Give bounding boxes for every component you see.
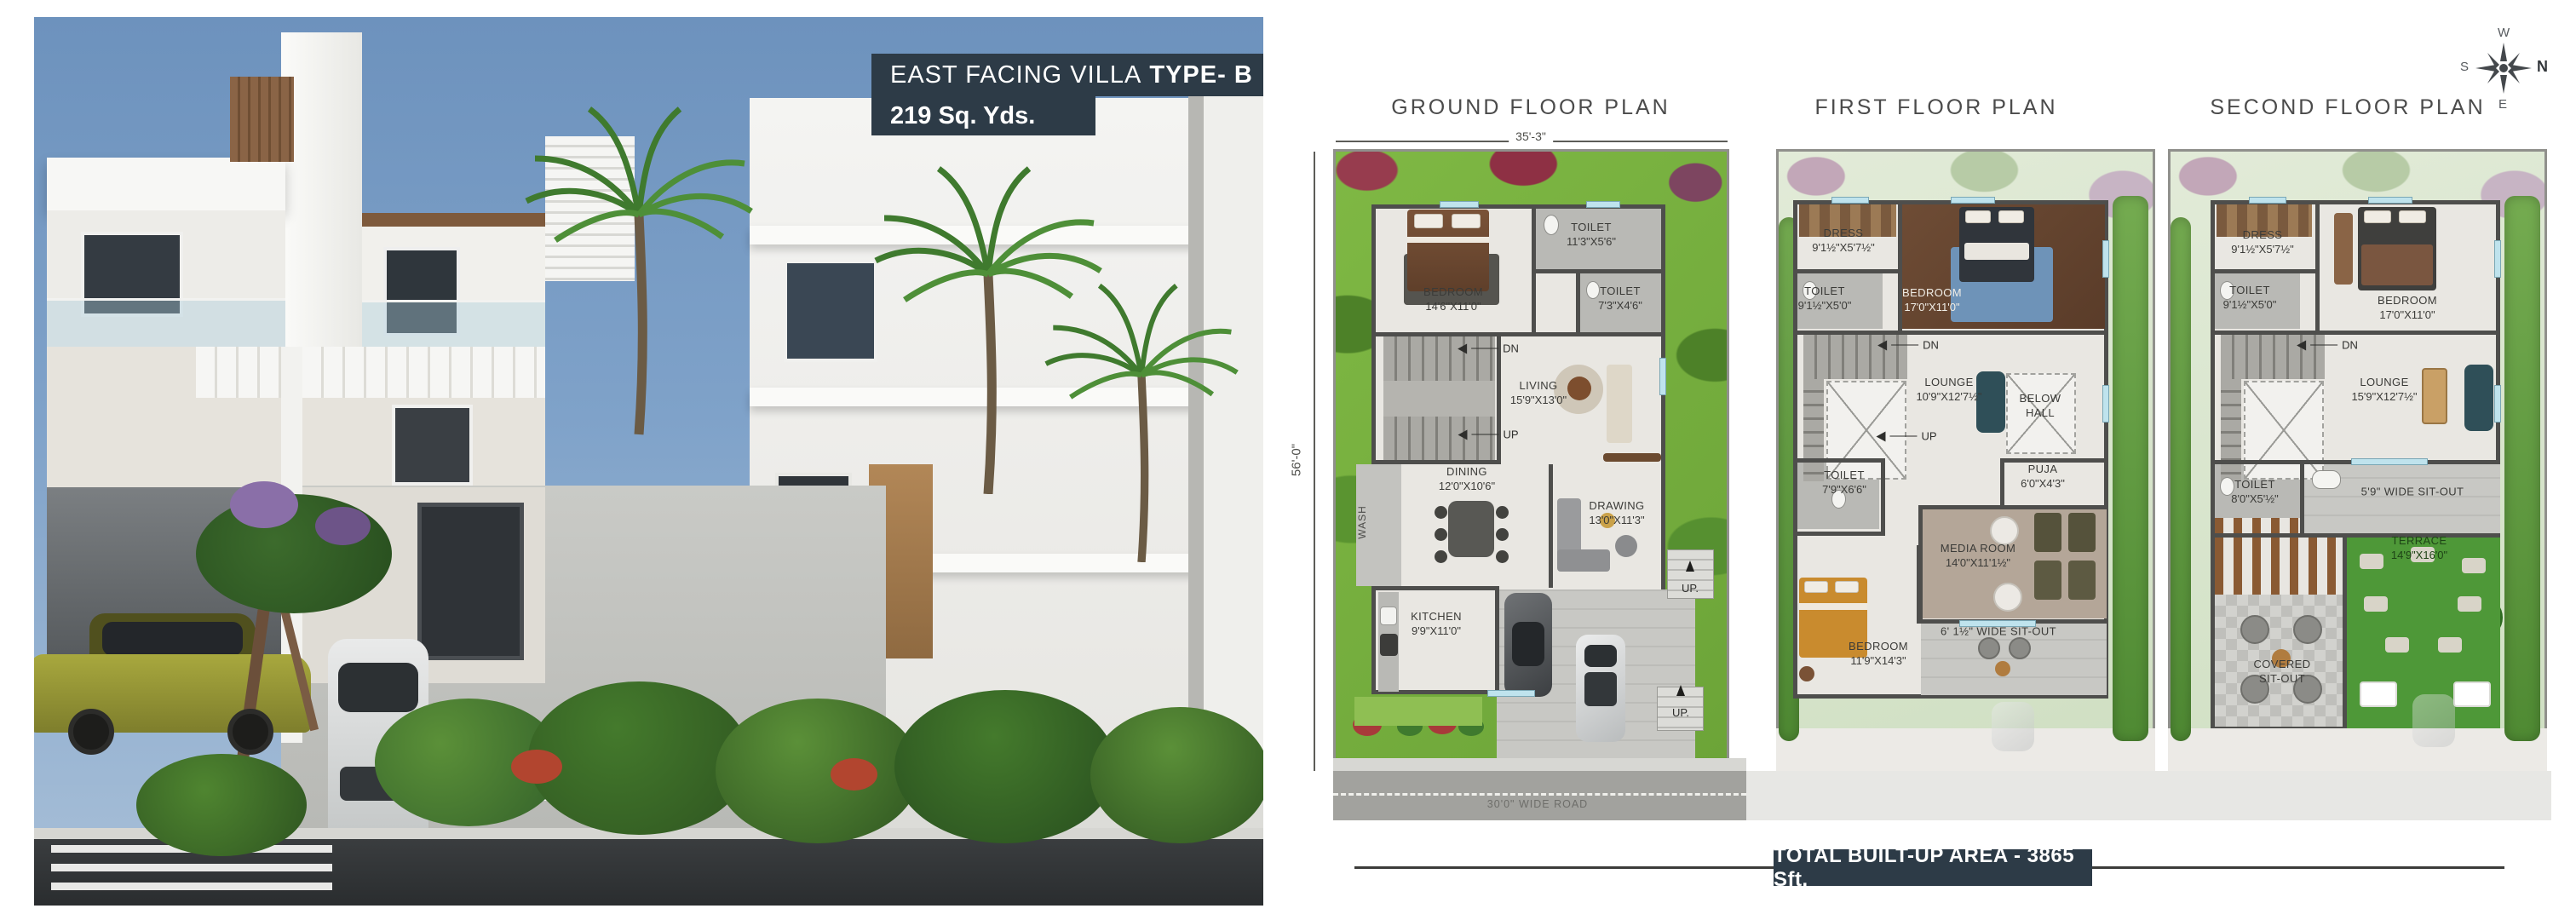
- room-label-bedroom: BEDROOM14'6"X11'0": [1423, 285, 1483, 314]
- bush: [716, 699, 920, 843]
- window: [392, 405, 473, 486]
- interior-wall: [1793, 458, 1885, 463]
- hedge-strip: [2504, 196, 2540, 741]
- wc-fixture: [1544, 215, 1559, 235]
- interior-wall: [1532, 269, 1665, 273]
- bed-pillow: [1835, 581, 1859, 593]
- villa-render-photo: [34, 17, 1263, 906]
- window-glass: [1951, 197, 1995, 204]
- entry-up-label: UP.: [1672, 685, 1689, 719]
- interior-wall: [2343, 533, 2347, 728]
- front-walk: [1776, 728, 2155, 771]
- olive-car: [34, 613, 311, 775]
- car-roof-glass: [1512, 622, 1544, 666]
- arrow-line: [2310, 344, 2337, 346]
- stairs-arrow-icon: [2297, 340, 2306, 350]
- total-area-banner: TOTAL BUILT-UP AREA - 3865 Sft.: [1774, 849, 2092, 886]
- sink: [1380, 607, 1397, 625]
- room-label-sitout: 6' 1½" WIDE SIT-OUT: [1941, 625, 2056, 640]
- window-glass: [2249, 197, 2286, 204]
- window-glass: [2102, 240, 2109, 278]
- bed-graphic: [2358, 207, 2436, 290]
- interior-wall: [1917, 545, 1921, 624]
- height-dimension-label: 56'-0": [1290, 437, 1304, 483]
- stair-flight: [1803, 379, 1824, 481]
- purple-flowers: [315, 507, 371, 545]
- sitout-chair: [2240, 615, 2269, 644]
- room-label-bedroom: BEDROOM17'0"X11'0": [2378, 294, 2437, 323]
- window-glass: [2102, 385, 2109, 423]
- interior-wall: [2300, 460, 2304, 537]
- car-below-faint: [1992, 702, 2034, 751]
- interior-wall: [1793, 331, 2108, 335]
- bedside-rug: [2334, 213, 2353, 285]
- road-center-line: [1333, 793, 1746, 796]
- first-floor-plan-title: FIRST FLOOR PLAN: [1783, 95, 2090, 120]
- stair-void: [2244, 381, 2324, 480]
- road-label: 30'0" WIDE ROAD: [1487, 798, 1588, 810]
- planter-strip: [1354, 697, 1482, 726]
- entry-up-label: UP.: [1682, 561, 1699, 595]
- sofa: [2464, 365, 2493, 431]
- room-label-media-room: MEDIA ROOM14'0"X11'1½": [1941, 542, 2016, 571]
- stairs-dn-label: DN: [2297, 339, 2358, 352]
- terrace-planter: [2453, 681, 2491, 707]
- interior-wall: [2211, 331, 2500, 335]
- window-glass: [2494, 385, 2501, 423]
- interior-wall: [1549, 464, 1553, 588]
- interior-wall: [2000, 458, 2004, 508]
- interior-wall: [2315, 200, 2320, 332]
- hero-title-type: TYPE- B: [1149, 61, 1252, 89]
- dining-chair: [1435, 506, 1447, 519]
- bush: [136, 754, 307, 856]
- window-glass: [2351, 458, 2428, 465]
- stair-flight: [2221, 379, 2241, 481]
- window: [784, 260, 877, 362]
- front-walk: [2168, 728, 2547, 771]
- car-windows: [102, 622, 243, 656]
- second-floor-plan-title: SECOND FLOOR PLAN: [2194, 95, 2501, 120]
- parked-car-silver: [1576, 635, 1625, 742]
- room-label-toilet: TOILET7'9"X6'6": [1822, 469, 1866, 497]
- arrow-line: [1471, 348, 1498, 349]
- bush: [894, 690, 1116, 843]
- compass-west-label: W: [2498, 26, 2510, 40]
- room-label-dress: DRESS9'1½"X5'7½": [1812, 227, 1874, 256]
- dining-chair: [1435, 550, 1447, 563]
- stairs-arrow-icon: [1458, 343, 1467, 354]
- stove: [1380, 634, 1398, 656]
- room-label-puja: PUJA6'0"X4'3": [2021, 463, 2065, 492]
- room-label-lounge: LOUNGE15'9"X12'7½": [2351, 376, 2417, 405]
- compass-north-label: N: [2537, 58, 2548, 76]
- road-continuation: [1746, 771, 2551, 820]
- window-glass: [2368, 197, 2412, 204]
- ground-floor-plan-title: GROUND FLOOR PLAN: [1377, 95, 1684, 120]
- car-windshield: [338, 663, 418, 712]
- room-label-toilet: TOILET9'1½"X5'0": [2223, 284, 2277, 313]
- room-label-bedroom: BEDROOM17'0"X11'0": [1902, 286, 1962, 315]
- interior-wall: [1793, 269, 1900, 273]
- car-roof-glass: [1584, 672, 1617, 706]
- window-glass: [1659, 358, 1666, 395]
- terrace-paver: [2458, 596, 2481, 612]
- dining-chair: [1496, 528, 1509, 541]
- bed-pillow: [1414, 214, 1443, 228]
- parked-car-dark: [1504, 593, 1552, 697]
- stairs-arrow-icon: [1458, 429, 1467, 440]
- room-label-dress: DRESS9'1½"X5'7½": [2231, 228, 2293, 257]
- room-label-living: LIVING15'9"X13'0": [1510, 379, 1567, 408]
- stairs-arrow-icon: [1876, 431, 1885, 441]
- sitout-chair: [2009, 637, 2031, 659]
- interior-wall: [2211, 533, 2304, 538]
- interior-wall: [1793, 532, 1885, 536]
- palm-tree: [511, 94, 767, 460]
- window-glass: [1487, 690, 1535, 697]
- bed-blanket: [2361, 244, 2433, 285]
- sitout-table: [1995, 661, 2010, 676]
- room-label-covered-sitout: COVEREDSIT-OUT: [2253, 658, 2310, 687]
- bed-sheet-band: [1407, 237, 1489, 243]
- stairs-up-label: UP: [1876, 430, 1936, 443]
- room-label-sitout: 5'9" WIDE SIT-OUT: [2361, 486, 2464, 500]
- white-balcony-rail: [196, 347, 545, 398]
- interior-wall: [1371, 332, 1542, 336]
- palm-tree: [1039, 273, 1244, 562]
- arrow-line: [1891, 344, 1918, 346]
- bed-sheet-band: [1964, 243, 2029, 260]
- round-table: [1990, 516, 2019, 545]
- stairs-up-label: UP: [1458, 428, 1518, 441]
- up-arrow-icon: [1676, 685, 1685, 696]
- hero-subtitle-banner: 219 Sq. Yds.: [871, 96, 1095, 135]
- glass-entry-door: [417, 503, 524, 660]
- hedge-strip: [2171, 217, 2191, 741]
- terrace-planter: [2360, 681, 2397, 707]
- bathtub-fixture: [2312, 470, 2341, 489]
- terrace-paver: [2438, 637, 2462, 653]
- room-label-bedroom: BEDROOM11'9"X14'3": [1849, 640, 1908, 669]
- car-wheel: [227, 709, 273, 755]
- car-windshield: [1584, 645, 1617, 667]
- recliner-seat: [2068, 513, 2096, 552]
- bed-pillow: [2399, 210, 2426, 223]
- bed-pillow: [1965, 210, 1991, 223]
- bed-pillow: [1804, 581, 1828, 593]
- sofa: [1557, 549, 1610, 572]
- stairs-dn-label: DN: [1458, 342, 1519, 355]
- terrace-paver: [2462, 558, 2486, 573]
- room-label-kitchen: KITCHEN9'9"X11'0": [1411, 610, 1462, 639]
- terrace-paver: [2364, 596, 2388, 612]
- interior-wall: [2211, 460, 2304, 464]
- roof-slab: [47, 158, 285, 210]
- interior-wall: [1495, 586, 1499, 694]
- room-label-terrace: TERRACE14'9"X16'0": [2391, 534, 2447, 563]
- bed-pillow: [1998, 210, 2024, 223]
- room-label-drawing: DRAWING13'0"X11'3": [1589, 499, 1644, 528]
- bed-graphic: [1407, 210, 1489, 291]
- hero-subtitle: 219 Sq. Yds.: [890, 102, 1035, 130]
- room-label-dining: DINING12'0"X10'6": [1439, 465, 1495, 494]
- window-glass: [1831, 197, 1869, 204]
- armchair: [1567, 377, 1591, 400]
- sitout-chair: [2293, 615, 2322, 644]
- terrace-paver: [2360, 554, 2383, 569]
- round-table: [1993, 583, 2022, 612]
- dining-chair: [1496, 506, 1509, 519]
- room-label-lounge: LOUNGE10'9"X12'7½": [1916, 376, 1981, 405]
- hero-title: EAST FACING VILLA: [890, 61, 1141, 89]
- plan-road: [1333, 771, 1746, 820]
- bed-graphic: [1959, 207, 2034, 282]
- interior-wall: [1881, 458, 1885, 535]
- red-flower-bush: [831, 758, 877, 791]
- arrow-line: [1889, 435, 1917, 437]
- car-wheel: [68, 709, 114, 755]
- interior-wall: [1918, 505, 2108, 509]
- crosswalk-stripes: [51, 845, 332, 900]
- interior-wall: [2211, 269, 2317, 273]
- upper-floor-wall: [47, 210, 285, 347]
- room-label-wash: WASH: [1356, 505, 1368, 539]
- total-area-text: TOTAL BUILT-UP AREA - 3865 Sft.: [1774, 844, 2092, 892]
- glass-balcony-rail: [47, 298, 285, 347]
- purple-flowers: [230, 481, 298, 528]
- room-label-toilet: TOILET9'1½"X5'0": [1798, 285, 1852, 313]
- window-glass: [1586, 201, 1620, 208]
- arrow-line: [1471, 434, 1498, 435]
- interior-wall: [1371, 460, 1501, 464]
- window-glass: [2494, 240, 2501, 278]
- recliner-seat: [2034, 513, 2061, 552]
- side-table: [1799, 666, 1814, 681]
- wood-accent-panel: [230, 77, 294, 162]
- dining-chair: [1435, 528, 1447, 541]
- stairs-arrow-icon: [1877, 340, 1887, 350]
- hedge-strip: [2113, 196, 2148, 741]
- room-label-toilet: TOILET11'3"X5'6": [1567, 221, 1616, 250]
- recliner-seat: [2034, 561, 2061, 600]
- sidewalk: [1333, 758, 1746, 771]
- bed-pillow: [1452, 214, 1481, 228]
- interior-wall: [1542, 332, 1665, 336]
- terrace-paver: [2385, 637, 2409, 653]
- up-arrow-icon: [1686, 561, 1694, 572]
- width-dimension-label: 35'-3": [1509, 129, 1553, 143]
- interior-wall: [1576, 269, 1580, 334]
- room-label-below-hall: BELOWHALL: [2020, 392, 2061, 421]
- hero-title-banner: EAST FACING VILLA TYPE- B: [871, 54, 1263, 96]
- room-label-toilet: TOILET7'3"X4'6": [1598, 285, 1642, 313]
- bush: [1090, 707, 1263, 843]
- recliner-seat: [2068, 561, 2096, 600]
- dining-table: [1448, 501, 1494, 557]
- sofa: [1607, 365, 1632, 443]
- brochure-page: { "hero": { "title_regular": "EAST FACIN…: [0, 0, 2576, 920]
- armchair: [1615, 535, 1637, 557]
- tv-console: [1603, 453, 1661, 462]
- stairs-dn-label: DN: [1877, 339, 1939, 352]
- interior-wall: [1371, 586, 1499, 590]
- window-glass: [1440, 201, 1479, 208]
- bed-pillow: [2364, 210, 2391, 223]
- compass-south-label: S: [2460, 60, 2469, 74]
- console-table: [2422, 368, 2447, 424]
- dining-chair: [1496, 550, 1509, 563]
- room-label-toilet: TOILET8'0"X5'½": [2231, 478, 2278, 507]
- red-flower-bush: [511, 750, 562, 784]
- stair-landing: [1383, 381, 1495, 417]
- car-below-faint: [2412, 694, 2455, 747]
- bed-sheet-band: [1799, 603, 1867, 610]
- height-dimension-line: [1314, 152, 1315, 771]
- sitout-chair: [1978, 637, 2000, 659]
